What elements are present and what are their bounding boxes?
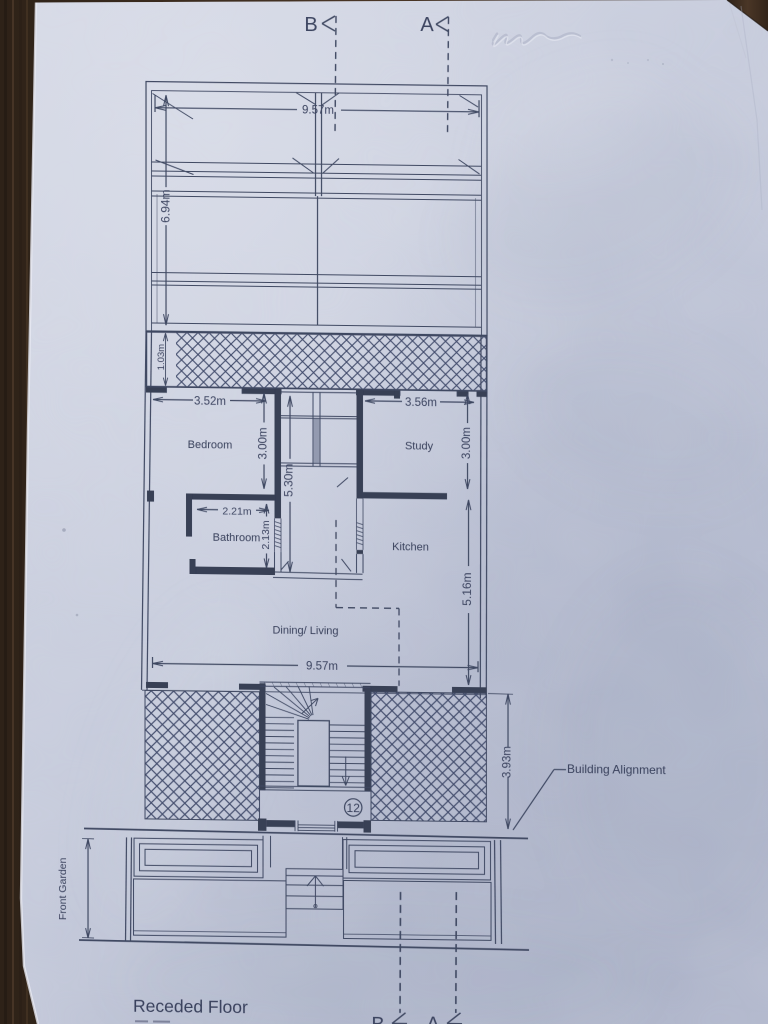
- svg-text:2.21m: 2.21m: [222, 505, 251, 517]
- svg-text:A: A: [420, 14, 434, 36]
- svg-text:Receded Floor: Receded Floor: [133, 996, 248, 1017]
- svg-text:3.00m: 3.00m: [258, 427, 270, 459]
- svg-text:A: A: [426, 1014, 440, 1024]
- svg-text:B: B: [371, 1014, 384, 1024]
- svg-text:Study: Study: [405, 440, 434, 452]
- svg-text:6.94m: 6.94m: [159, 189, 173, 223]
- svg-text:Building Alignment: Building Alignment: [567, 762, 666, 777]
- svg-text:5.16m: 5.16m: [460, 572, 474, 606]
- svg-text:9.57m: 9.57m: [302, 104, 334, 116]
- svg-text:Front Garden: Front Garden: [57, 857, 69, 920]
- svg-text:Bedroom: Bedroom: [188, 439, 233, 452]
- svg-text:2.13m: 2.13m: [260, 520, 272, 550]
- svg-text:1.03m: 1.03m: [156, 344, 167, 371]
- svg-text:3.93m: 3.93m: [502, 746, 514, 778]
- svg-text:3.00m: 3.00m: [461, 427, 473, 459]
- svg-text:3.52m: 3.52m: [194, 396, 226, 408]
- svg-text:5.30m: 5.30m: [282, 463, 296, 497]
- svg-text:B: B: [304, 14, 317, 36]
- svg-text:Dining/ Living: Dining/ Living: [272, 625, 338, 638]
- svg-text:Kitchen: Kitchen: [392, 541, 429, 553]
- svg-text:Bathroom: Bathroom: [213, 532, 261, 545]
- svg-text:12: 12: [347, 801, 361, 815]
- svg-text:3.56m: 3.56m: [405, 397, 437, 409]
- svg-text:9.57m: 9.57m: [306, 660, 338, 672]
